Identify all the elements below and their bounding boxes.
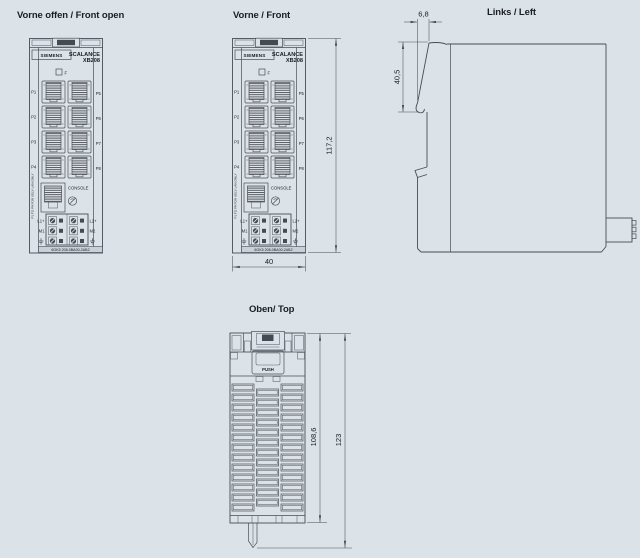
- dim-front-height-label: 117,2: [325, 136, 334, 154]
- dim-front-width-label: 40: [265, 257, 273, 266]
- dim-hinge-depth-label: 6,8: [418, 10, 428, 19]
- dimension-drawing: SIEMENS SCALANCE XB208 F P1 P2 P3 P4 P5 …: [0, 0, 640, 558]
- din-rail-clip: [606, 218, 632, 242]
- push-button-label: PUSH: [262, 367, 274, 372]
- dim-top-body-depth-label: 108,6: [309, 428, 318, 447]
- view-front-title: Vorne / Front: [233, 10, 291, 21]
- view-front-open-title: Vorne offen / Front open: [17, 10, 124, 21]
- dim-top-total-depth-label: 123: [334, 434, 343, 447]
- view-left-title: Links / Left: [487, 7, 537, 18]
- top-bus-contact: [262, 335, 274, 342]
- view-top-title: Oben/ Top: [249, 304, 295, 315]
- dim-front-panel-height-label: 40,5: [393, 70, 402, 85]
